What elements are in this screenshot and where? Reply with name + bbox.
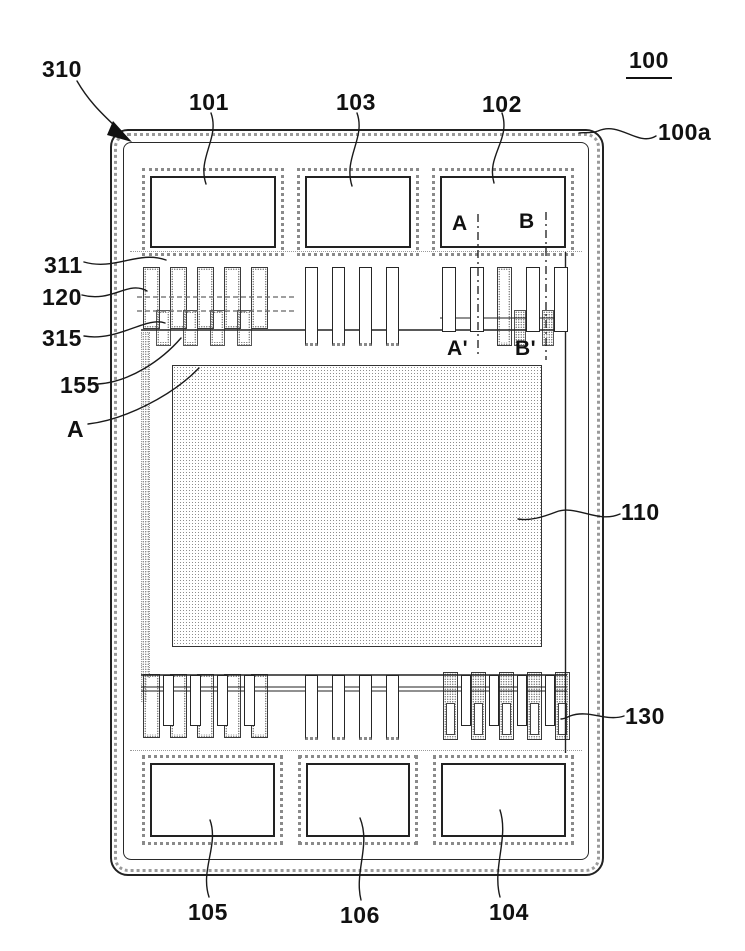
ref-311: 311: [44, 252, 83, 279]
leader-100a: [579, 129, 656, 139]
ref-101: 101: [189, 89, 229, 116]
section-label-B-prime: B': [515, 337, 536, 361]
ref-105: 105: [188, 899, 228, 926]
ref-120: 120: [42, 284, 82, 311]
leader-106: [359, 818, 364, 900]
ref-310: 310: [42, 56, 82, 83]
leader-315: [84, 322, 165, 337]
ref-110: 110: [621, 499, 660, 526]
ref-100a: 100a: [658, 119, 711, 146]
patent-figure: 310 101 103 102 100 100a 311 120 315 155…: [0, 0, 745, 951]
leader-102: [492, 113, 504, 183]
leader-110: [518, 510, 620, 519]
arrowhead-310-icon: [107, 121, 132, 142]
ref-102: 102: [482, 91, 522, 118]
leader-311: [84, 257, 166, 264]
ref-A: A: [67, 416, 84, 443]
leader-104: [498, 810, 503, 897]
leader-101: [204, 113, 213, 184]
ref-106: 106: [340, 902, 380, 929]
section-label-A-prime: A': [447, 337, 468, 361]
section-label-B: B: [519, 210, 535, 234]
leader-105: [207, 820, 213, 897]
ref-315: 315: [42, 325, 82, 352]
ref-104: 104: [489, 899, 529, 926]
ref-103: 103: [336, 89, 376, 116]
ref-100-underlined: 100: [626, 47, 672, 79]
leader-130: [561, 714, 624, 719]
leader-155: [98, 338, 181, 384]
leader-A: [88, 368, 199, 424]
ref-155: 155: [60, 372, 100, 399]
section-label-A: A: [452, 212, 468, 236]
ref-130: 130: [625, 703, 665, 730]
leader-310: [77, 81, 116, 127]
leader-lines: [0, 0, 745, 951]
leader-103: [350, 113, 359, 186]
leader-120: [82, 288, 147, 297]
